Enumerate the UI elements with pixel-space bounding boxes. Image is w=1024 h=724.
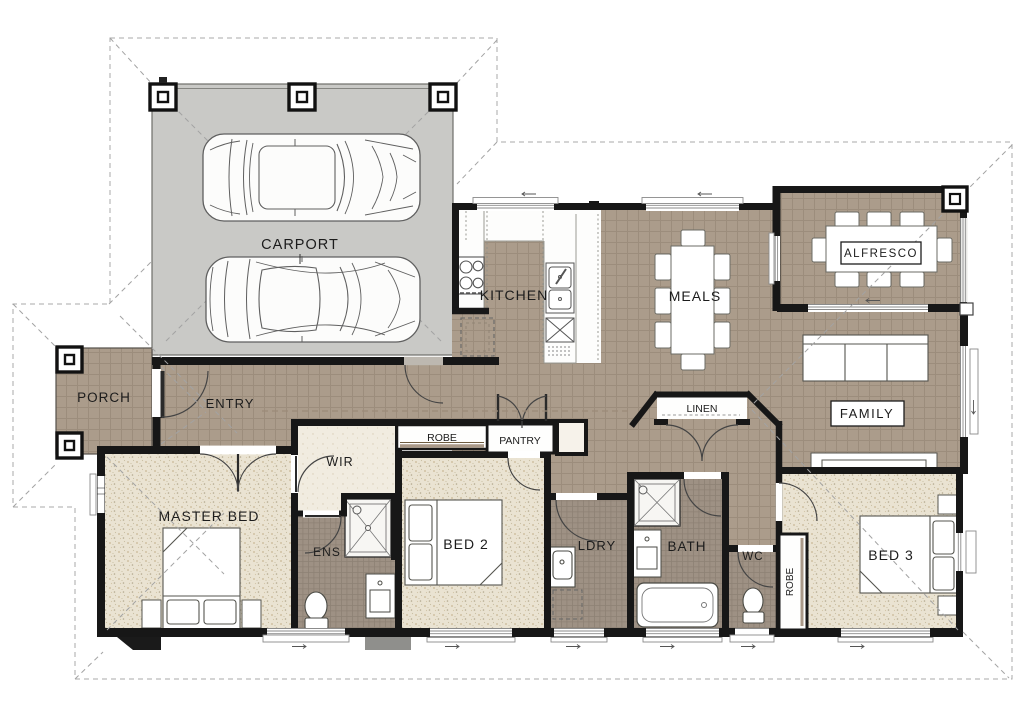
svg-text:CARPORT: CARPORT xyxy=(261,237,339,253)
svg-text:WC: WC xyxy=(742,551,763,563)
svg-text:MASTER BED: MASTER BED xyxy=(158,508,259,524)
svg-text:BED 2: BED 2 xyxy=(443,536,488,552)
svg-text:ROBE: ROBE xyxy=(427,432,457,444)
svg-text:BATH: BATH xyxy=(667,539,706,554)
svg-text:FAMILY: FAMILY xyxy=(840,406,894,421)
svg-text:ENTRY: ENTRY xyxy=(206,396,255,411)
svg-text:KITCHEN: KITCHEN xyxy=(480,287,548,303)
svg-text:ENS: ENS xyxy=(313,545,341,559)
svg-text:ALFRESCO: ALFRESCO xyxy=(844,248,918,260)
svg-text:LDRY: LDRY xyxy=(578,538,616,553)
svg-text:MEALS: MEALS xyxy=(669,288,721,304)
svg-text:PORCH: PORCH xyxy=(77,390,131,405)
svg-text:LINEN: LINEN xyxy=(687,403,718,415)
svg-text:BED 3: BED 3 xyxy=(868,547,913,563)
svg-text:ROBE: ROBE xyxy=(785,568,796,597)
svg-text:WIR: WIR xyxy=(326,455,353,469)
svg-text:PANTRY: PANTRY xyxy=(499,435,541,447)
